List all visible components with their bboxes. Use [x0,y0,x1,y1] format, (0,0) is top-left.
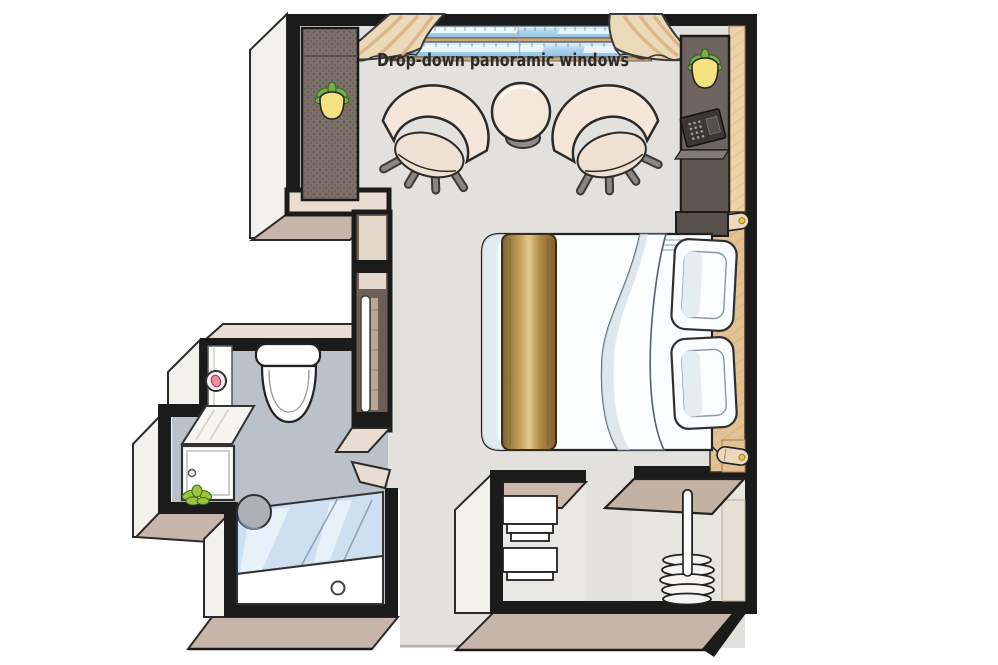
pillow-bottom [671,336,738,429]
wall-right [745,14,757,610]
pillow-top [671,238,738,331]
face-top-left-white [250,14,287,238]
closet-left [503,482,586,601]
wall-closets-bottom [490,601,757,614]
wall-top [287,14,757,26]
safe-cabinet [675,36,729,236]
towel-stack-2 [503,548,557,580]
bed [482,234,737,450]
face-closets-bottom-taupe [456,613,745,650]
window-label: Drop-down panoramic windows [377,51,629,71]
mirror-wall-upper-face [359,216,386,260]
nightstand [676,212,728,236]
floorplan-page: Drop-down panoramic windows [0,0,998,665]
tall-cabinet [302,28,358,200]
wall-shower-right [385,488,398,617]
wall-closet-left-side [490,470,503,614]
face-bath-upper-left-white [168,340,200,414]
face-shower-bottom-taupe [188,617,398,649]
shower-drain [332,582,345,595]
wall-left-upper [287,14,300,212]
mirror-frame [371,298,378,410]
cabin-floorplan: Drop-down panoramic windows [0,0,998,665]
mirror [361,296,370,412]
stool [237,495,271,530]
wall-vanity-left [158,414,171,514]
towel-stack-1 [503,496,557,541]
shower [237,492,383,604]
wall-shower-left [224,514,237,614]
outer-bottom-outline [188,649,706,650]
wall-closet-left-top [490,470,586,482]
toilet-paper-holder-icon [206,371,226,391]
vanity-knob [189,470,196,477]
wall-shower-bottom [224,604,398,617]
face-bath-top-beige [205,324,372,340]
